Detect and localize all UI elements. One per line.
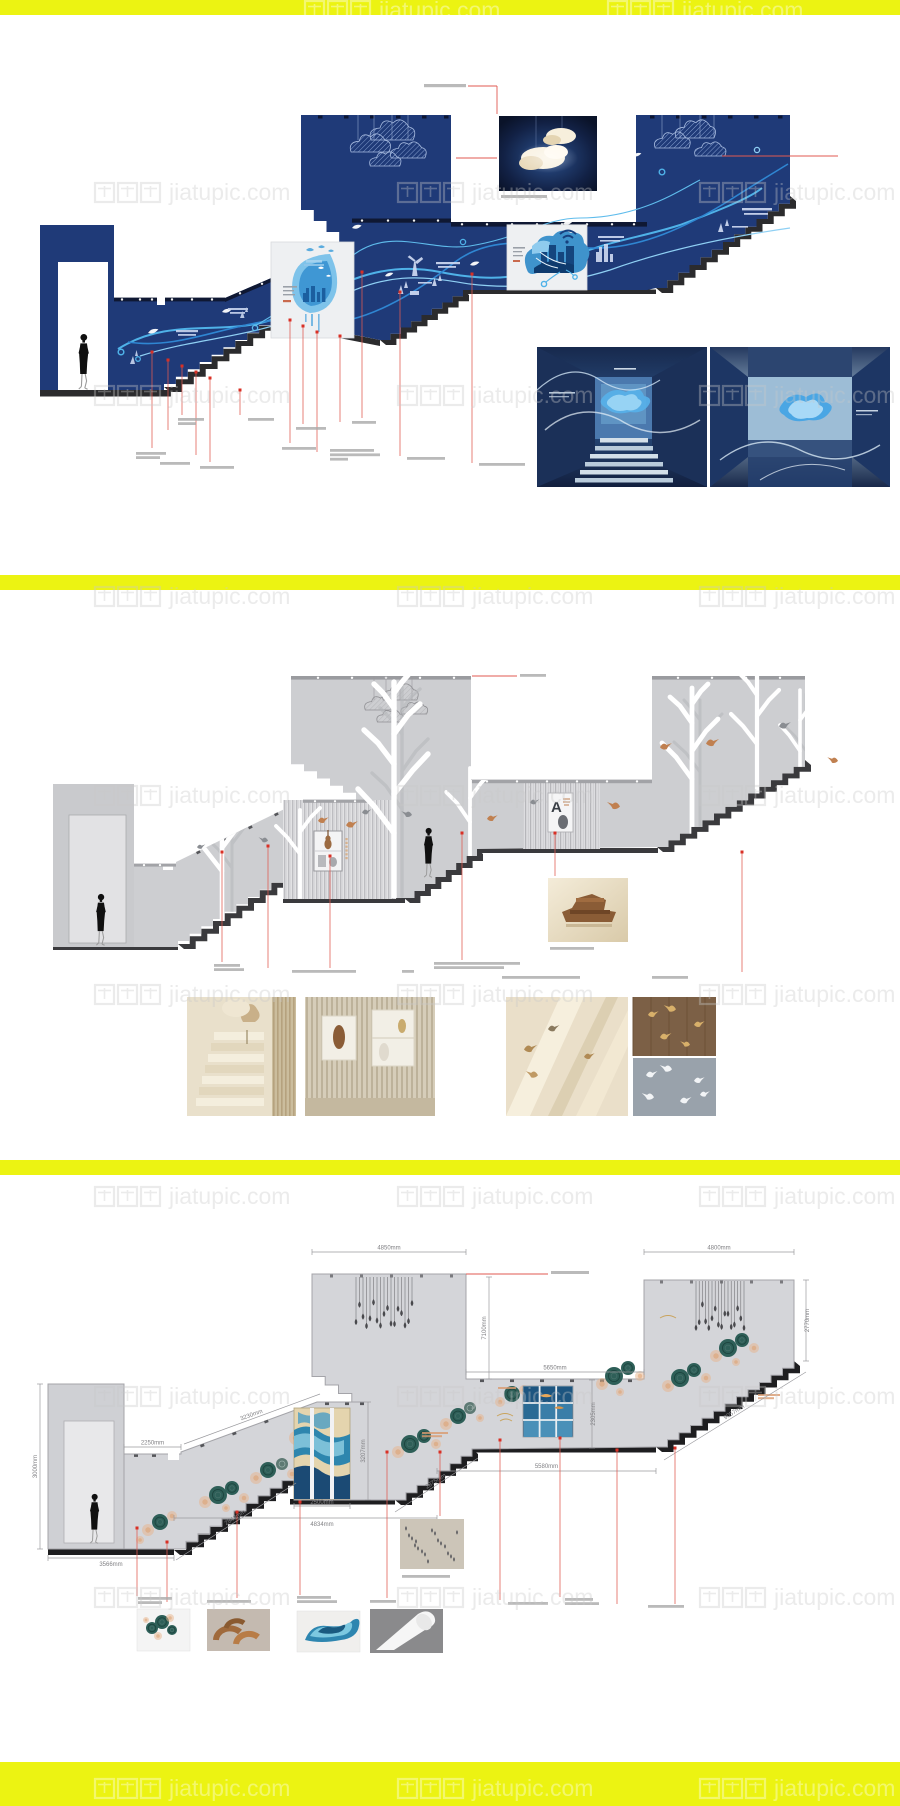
svg-text:4800mm: 4800mm: [707, 1246, 730, 1252]
svg-text:jiatupic.com: jiatupic.com: [773, 382, 895, 408]
svg-text:jiatupic.com: jiatupic.com: [773, 583, 895, 609]
svg-text:jiatupic.com: jiatupic.com: [168, 981, 290, 1007]
svg-text:7100mm: 7100mm: [482, 1316, 488, 1339]
svg-text:jiatupic.com: jiatupic.com: [168, 1584, 290, 1610]
svg-text:jiatupic.com: jiatupic.com: [773, 1775, 895, 1801]
svg-text:jiatupic.com: jiatupic.com: [471, 583, 593, 609]
svg-text:jiatupic.com: jiatupic.com: [773, 1383, 895, 1409]
svg-text:2250mm: 2250mm: [141, 1441, 164, 1447]
svg-text:jiatupic.com: jiatupic.com: [168, 179, 290, 205]
svg-text:jiatupic.com: jiatupic.com: [471, 1383, 593, 1409]
svg-text:jiatupic.com: jiatupic.com: [168, 1775, 290, 1801]
svg-text:jiatupic.com: jiatupic.com: [471, 1775, 593, 1801]
svg-text:3207mm: 3207mm: [361, 1439, 367, 1462]
svg-text:2770mm: 2770mm: [805, 1309, 811, 1332]
svg-text:jiatupic.com: jiatupic.com: [471, 382, 593, 408]
svg-text:jiatupic.com: jiatupic.com: [471, 1584, 593, 1610]
svg-text:3566mm: 3566mm: [99, 1562, 122, 1568]
svg-text:4834mm: 4834mm: [310, 1522, 333, 1528]
svg-text:5650mm: 5650mm: [543, 1366, 566, 1372]
svg-text:jiatupic.com: jiatupic.com: [168, 782, 290, 808]
svg-text:jiatupic.com: jiatupic.com: [168, 1383, 290, 1409]
svg-text:jiatupic.com: jiatupic.com: [773, 1584, 895, 1610]
svg-text:3000mm: 3000mm: [33, 1455, 39, 1478]
svg-text:4850mm: 4850mm: [377, 1246, 400, 1252]
svg-text:jiatupic.com: jiatupic.com: [168, 583, 290, 609]
svg-text:jiatupic.com: jiatupic.com: [773, 782, 895, 808]
svg-text:2500mm: 2500mm: [310, 1500, 333, 1506]
svg-text:jiatupic.com: jiatupic.com: [773, 981, 895, 1007]
svg-text:jiatupic.com: jiatupic.com: [471, 981, 593, 1007]
svg-text:jiatupic.com: jiatupic.com: [168, 382, 290, 408]
svg-text:5580mm: 5580mm: [535, 1464, 558, 1470]
svg-text:jiatupic.com: jiatupic.com: [471, 179, 593, 205]
svg-text:jiatupic.com: jiatupic.com: [773, 179, 895, 205]
svg-text:jiatupic.com: jiatupic.com: [471, 1183, 593, 1209]
svg-text:jiatupic.com: jiatupic.com: [773, 1183, 895, 1209]
svg-text:jiatupic.com: jiatupic.com: [471, 782, 593, 808]
svg-text:jiatupic.com: jiatupic.com: [168, 1183, 290, 1209]
